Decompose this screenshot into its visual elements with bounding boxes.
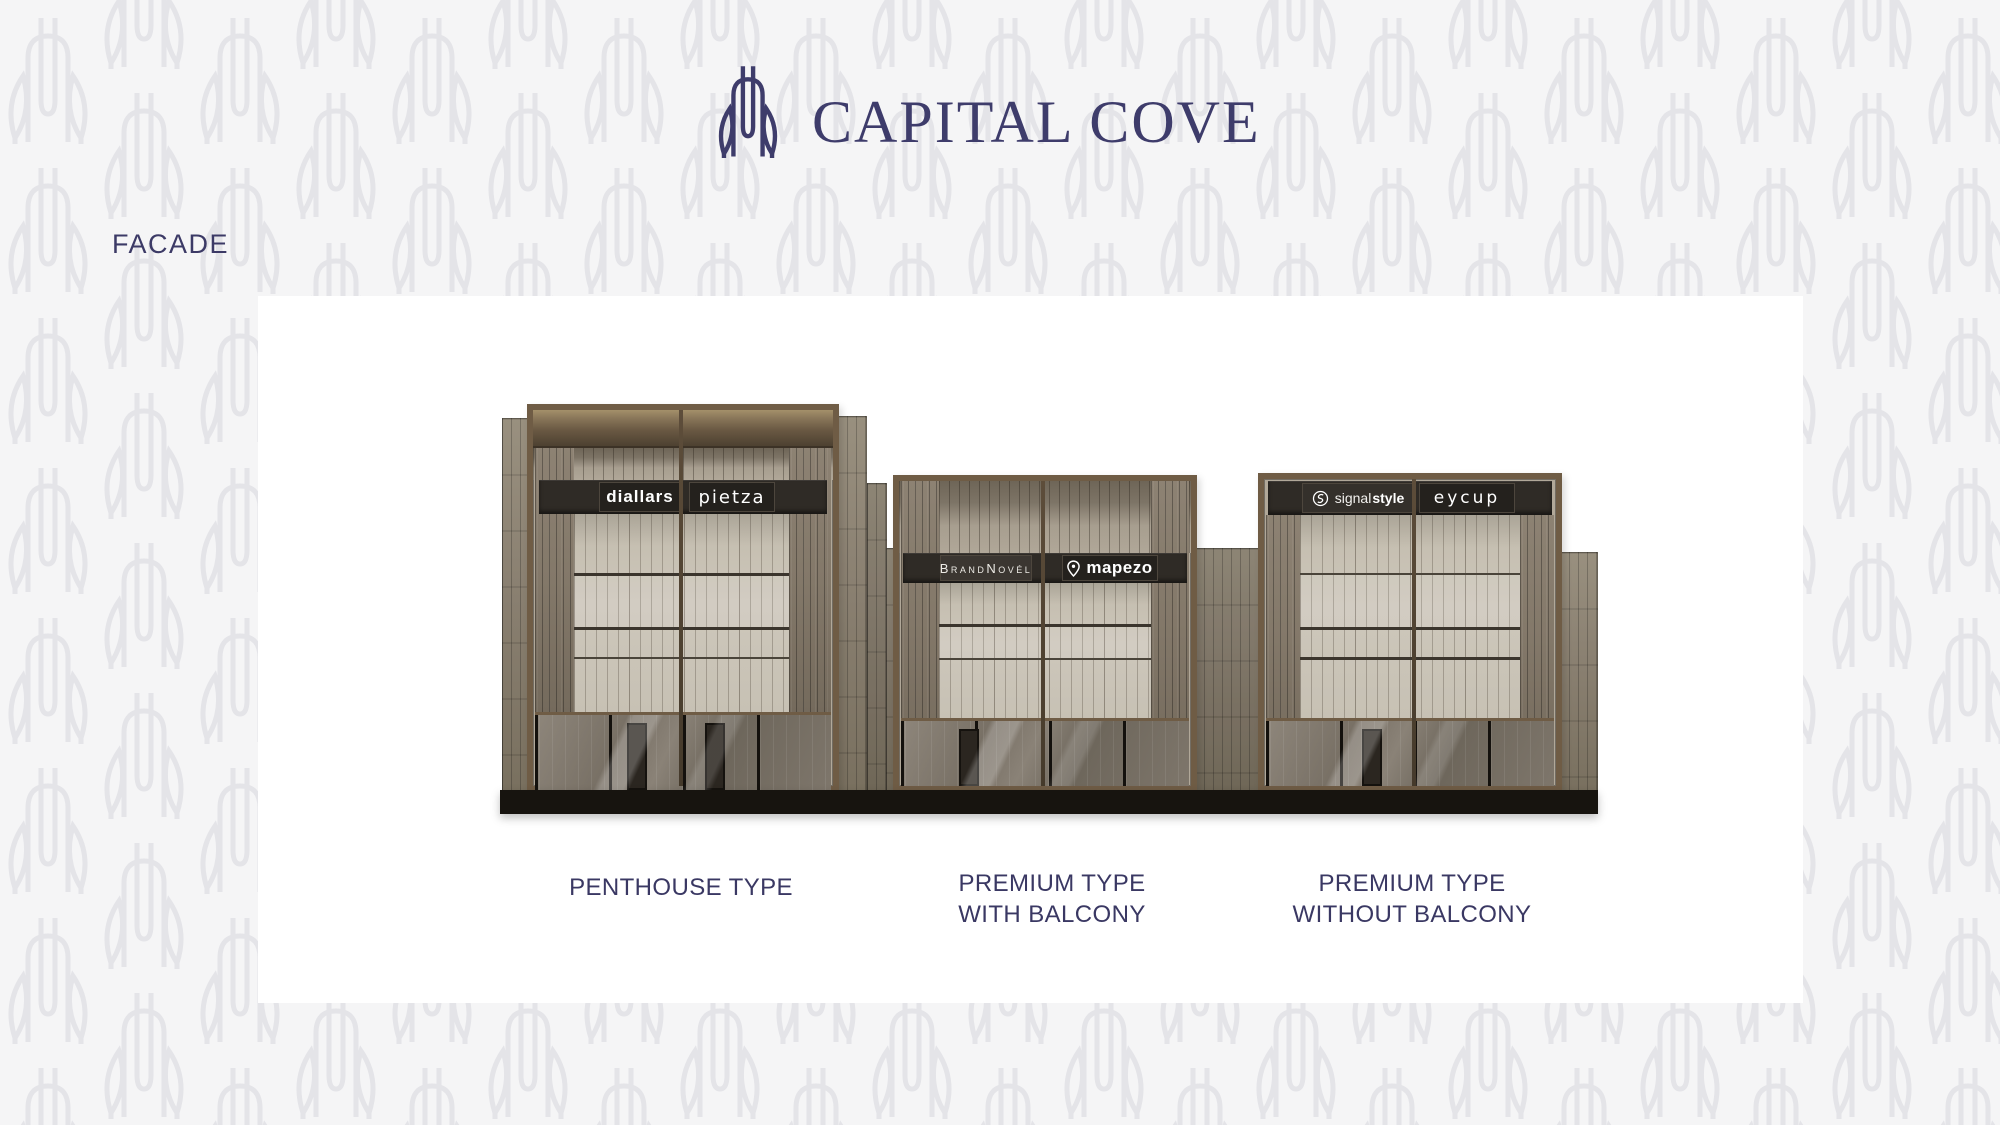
facade-elevation: diallars pietza — [500, 400, 1600, 820]
floor-line — [1300, 657, 1520, 660]
right-edge-wing — [1560, 552, 1598, 792]
brand-logo-icon — [712, 56, 784, 158]
penthouse-upper-glazing — [533, 448, 833, 480]
signalstyle-swirl-icon — [1312, 490, 1329, 507]
caption-premium-balcony-line1: PREMIUM TYPE — [880, 868, 1224, 899]
premium-balcony-storefront — [901, 718, 1189, 786]
premium-no-balcony-sign-band: signal style eycup — [1268, 481, 1552, 515]
penthouse-right-wing — [838, 416, 867, 792]
caption-premium-no-balcony: PREMIUM TYPE WITHOUT BALCONY — [1240, 868, 1584, 930]
premium-no-balcony-door — [1362, 729, 1382, 786]
building-penthouse: diallars pietza — [527, 404, 839, 792]
sign-mapezo: mapezo — [1062, 555, 1158, 581]
floor-tint — [1300, 573, 1520, 627]
left-edge-wing — [502, 418, 529, 792]
premium-balcony-door — [959, 729, 979, 786]
premium-balcony-curtain-wall — [939, 583, 1151, 718]
sign-mapezo-text: mapezo — [1086, 558, 1152, 578]
penthouse-storefront — [535, 712, 831, 790]
floor-line — [1300, 627, 1520, 630]
floor-line — [939, 624, 1151, 627]
sign-signal-light: signal — [1335, 490, 1372, 506]
penthouse-center-mullion — [679, 410, 683, 786]
caption-premium-no-balcony-line1: PREMIUM TYPE — [1240, 868, 1584, 899]
penthouse-door — [705, 723, 725, 790]
premium-balcony-sign-band: BrandNovél mapezo — [903, 553, 1187, 583]
sign-pietza-text: pietza — [698, 487, 765, 508]
slide: CAPITAL COVE FACADE diallars pietza — [0, 0, 2000, 1125]
premium-balcony-upper-glazing — [899, 481, 1191, 553]
map-pin-icon — [1067, 560, 1080, 577]
penthouse-sign-band: diallars pietza — [539, 480, 827, 514]
premium-no-balcony-storefront — [1266, 718, 1554, 786]
floor-line — [1300, 573, 1520, 575]
brand-wordmark: CAPITAL COVE — [812, 88, 1261, 157]
sign-signalstyle: signal style — [1302, 483, 1414, 513]
premium-balcony-center-mullion — [1041, 481, 1045, 786]
premium-no-balcony-curtain-wall — [1300, 515, 1520, 718]
sign-pietza: pietza — [689, 482, 775, 512]
sign-signalstyle-text: signal style — [1335, 490, 1405, 506]
caption-penthouse-line1: PENTHOUSE TYPE — [500, 872, 862, 903]
caption-premium-balcony-line2: WITH BALCONY — [880, 899, 1224, 930]
penthouse-canopy — [533, 410, 833, 448]
sign-signal-bold: style — [1372, 490, 1404, 506]
connector-right — [1195, 548, 1261, 792]
caption-penthouse: PENTHOUSE TYPE — [500, 872, 862, 903]
sign-brandnovel: BrandNovél — [940, 555, 1032, 581]
sign-brandnovel-text: BrandNovél — [940, 561, 1033, 576]
floor-tint — [939, 624, 1151, 658]
penthouse-door — [627, 723, 647, 790]
sign-eycup: eycup — [1419, 483, 1515, 513]
penthouse-right-shoulder — [867, 483, 887, 792]
floor-line — [939, 658, 1151, 660]
caption-premium-no-balcony-line2: WITHOUT BALCONY — [1240, 899, 1584, 930]
premium-no-balcony-center-mullion — [1412, 479, 1416, 786]
building-premium-balcony: BrandNovél mapezo — [893, 475, 1197, 792]
sign-diallars: diallars — [599, 482, 681, 512]
page-title: FACADE — [112, 229, 229, 260]
caption-premium-balcony: PREMIUM TYPE WITH BALCONY — [880, 868, 1224, 930]
ground-base — [500, 790, 1598, 814]
sign-diallars-text: diallars — [606, 487, 674, 507]
building-premium-no-balcony: signal style eycup — [1258, 473, 1562, 792]
sign-eycup-text: eycup — [1434, 488, 1500, 508]
